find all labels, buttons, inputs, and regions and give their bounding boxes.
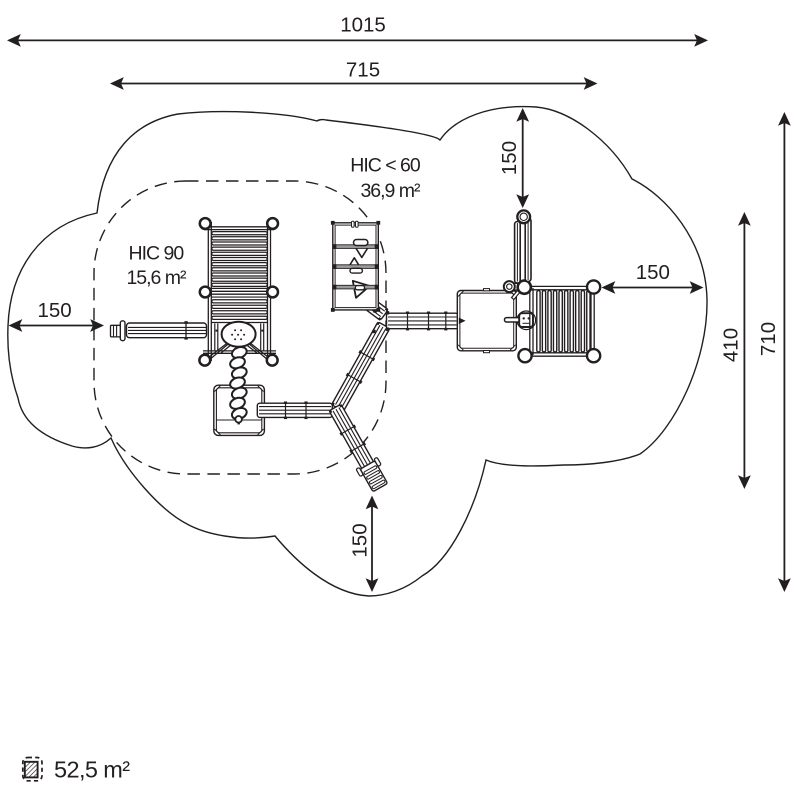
svg-text:15,6 m²: 15,6 m² [126, 267, 187, 289]
svg-text:150: 150 [37, 299, 71, 322]
svg-text:410: 410 [720, 328, 743, 362]
svg-text:150: 150 [349, 523, 372, 557]
svg-text:715: 715 [346, 59, 380, 82]
svg-text:1015: 1015 [340, 14, 386, 37]
svg-text:36,9 m²: 36,9 m² [360, 180, 421, 202]
svg-text:150: 150 [636, 261, 670, 284]
svg-text:710: 710 [757, 322, 780, 356]
svg-text:150: 150 [498, 141, 521, 175]
svg-text:HIC 90: HIC 90 [129, 243, 185, 265]
svg-text:52,5 m²: 52,5 m² [54, 756, 130, 782]
svg-text:HIC < 60: HIC < 60 [350, 155, 421, 177]
